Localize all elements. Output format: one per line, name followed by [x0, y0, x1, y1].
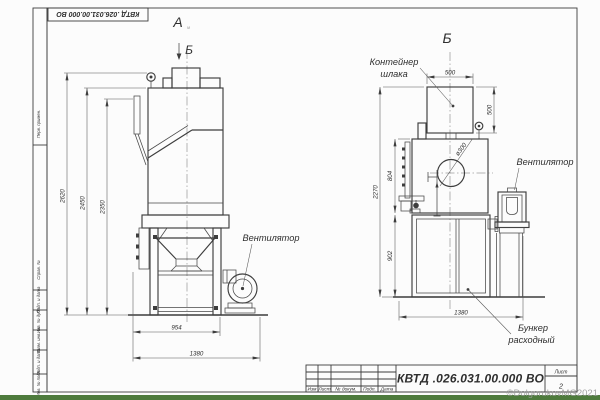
view-b-title: Б	[442, 30, 451, 46]
drawing-sheet: Перв. примен. Справ. № Подп. и дата Инв.…	[0, 0, 600, 400]
dim-2350: 2350	[99, 200, 106, 215]
dim-500-top: 500	[445, 70, 456, 77]
container-label-line2: шлака	[380, 69, 407, 79]
tb-col-list: Лист	[317, 387, 330, 393]
top-duct-outlet	[200, 78, 220, 88]
tb-col-data: Дата	[380, 387, 394, 393]
tb-sheet-label: Лист	[554, 370, 568, 376]
left-view: 2620 2450 2350 954 1380 Вентилятор	[59, 50, 299, 362]
dim-2450: 2450	[79, 196, 86, 211]
fan-label-right: Вентилятор	[517, 157, 574, 167]
side-strip	[134, 96, 140, 134]
view-a-label: А	[172, 14, 182, 30]
dim-500-side: 500	[486, 104, 493, 115]
top-duct-step	[163, 78, 172, 88]
view-a-subscript: м	[187, 25, 190, 30]
top-step-box	[418, 123, 426, 139]
dim-1380-left: 1380	[190, 351, 204, 358]
dim-1380-right: 1380	[454, 310, 468, 317]
frame-label-inv-podl: Инв. № подл.	[36, 370, 41, 397]
support-stand	[150, 228, 221, 315]
hinge-strip	[402, 142, 410, 198]
tb-col-podp: Подп.	[363, 387, 376, 393]
dim-2620: 2620	[59, 189, 66, 204]
bunker-label-line2: расходный	[507, 335, 554, 345]
left-view-dimensions: 2620 2450 2350 954 1380	[59, 73, 260, 362]
engineering-drawing: Перв. примен. Справ. № Подп. и дата Инв.…	[0, 0, 600, 400]
tb-doc-number: КВТД .026.031.00.000 ВО	[397, 372, 544, 386]
right-view: ø300 500 500 2270 804 902 1380	[370, 52, 574, 345]
inclined-chute	[148, 130, 192, 158]
dim-2270: 2270	[372, 185, 379, 200]
bunker-label-line1: Бункер	[518, 323, 548, 333]
fan-label-left: Вентилятор	[243, 233, 300, 243]
top-stamp-doc-number: КВТД .026.031.00.000 ВО	[56, 10, 140, 17]
view-b-marker: Б	[185, 43, 193, 57]
view-markers: А м Б Б	[172, 14, 451, 60]
frame-label-perv-primen: Перв. примен.	[36, 110, 41, 139]
top-duct	[172, 68, 200, 88]
top-valve-right	[475, 122, 483, 139]
frame-label-sprav-n: Справ. №	[36, 260, 41, 280]
container-label-line1: Контейнер	[370, 57, 419, 67]
dim-804: 804	[387, 170, 394, 181]
dim-dia-300: ø300	[454, 141, 468, 157]
dim-902: 902	[387, 250, 394, 261]
hinge-plate	[136, 228, 149, 269]
fan-leader-left	[243, 244, 252, 286]
tb-col-dokum: № докум.	[335, 387, 356, 393]
dim-954: 954	[171, 325, 182, 332]
top-valve	[147, 73, 155, 88]
right-view-dimensions: 500 500 2270 804 902 1380	[372, 70, 523, 321]
fan-left-view	[223, 270, 257, 313]
discharge-funnel	[156, 238, 215, 271]
base-flange	[142, 215, 229, 228]
copyright-watermark: ©DolgorukovMG2021	[507, 388, 599, 399]
bunker	[412, 215, 490, 297]
tb-col-izm: Изм	[308, 387, 318, 393]
drawing-frame: Перв. примен. Справ. № Подп. и дата Инв.…	[33, 8, 577, 396]
